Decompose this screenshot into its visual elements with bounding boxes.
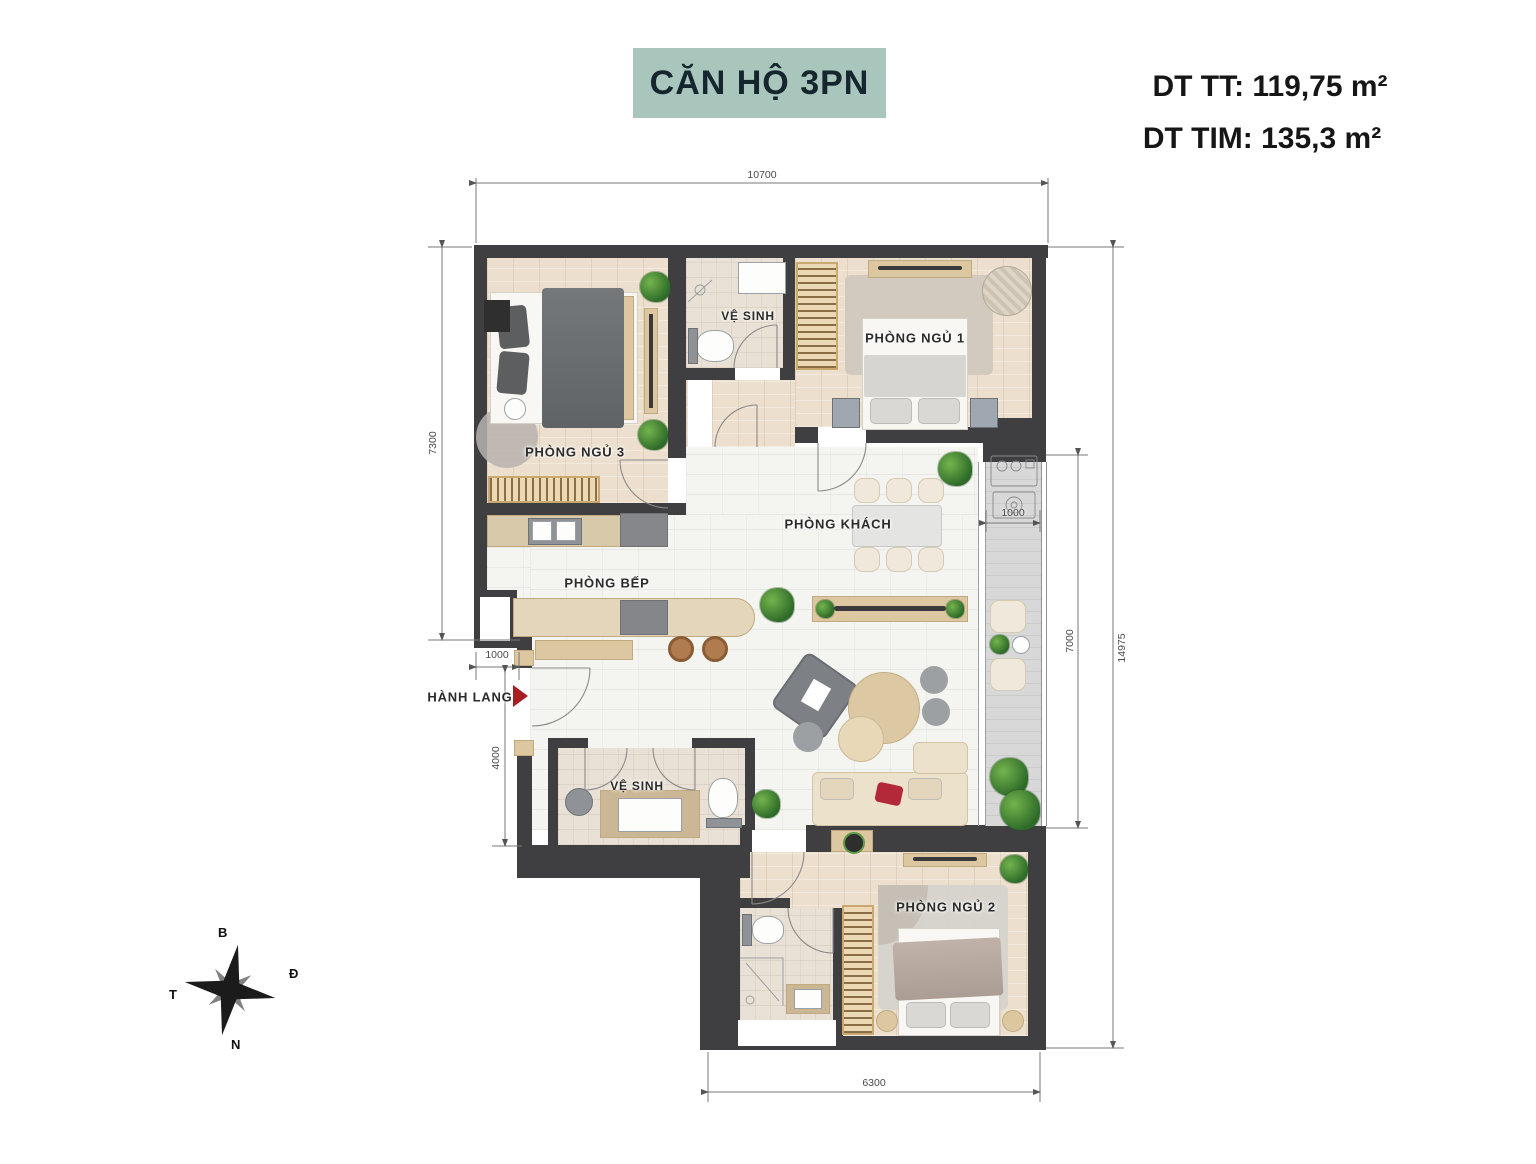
bath1-toilet-tank — [688, 328, 698, 364]
balcony-table — [1012, 636, 1030, 654]
balcony-chair-1 — [990, 600, 1026, 633]
dim-balcony-width: 1000 — [1001, 507, 1024, 519]
dining-chair-6 — [918, 547, 944, 572]
bath2-toilet-tank — [706, 818, 742, 828]
wall-bath2-top-b — [692, 738, 755, 748]
dim-top: 10700 — [747, 169, 776, 181]
bedroom1-tv-line — [878, 266, 962, 270]
compass-west-label: T — [169, 987, 177, 1002]
bedroom1-pillow-2 — [918, 398, 960, 424]
wing-niche — [738, 1020, 836, 1046]
compass-north-label: B — [218, 925, 227, 940]
bedroom2-pillow-2 — [950, 1002, 990, 1028]
bedroom2-plant — [1000, 855, 1028, 883]
wall-bed1-bottom-a — [795, 427, 818, 443]
bedroom1-sheet — [864, 355, 966, 397]
living-label: PHÒNG KHÁCH — [784, 517, 891, 532]
bedroom2-label: PHÒNG NGỦ 2 — [896, 900, 996, 915]
kitchen-stool-2 — [702, 636, 728, 662]
bath2-toilet-bowl — [708, 778, 738, 818]
kitchen-sink-left — [532, 521, 552, 541]
living-sofa-chaise — [913, 742, 968, 774]
bedroom3-wardrobe — [488, 476, 600, 503]
compass-star-secondary — [194, 954, 266, 1026]
bedroom3-tv-line — [649, 314, 653, 408]
dim-right-total: 14975 — [1116, 633, 1128, 662]
entry-jamb-bottom — [514, 740, 534, 756]
dining-chair-1 — [854, 478, 880, 503]
bath3-toilet-bowl — [752, 916, 784, 944]
bedroom2-blanket — [893, 937, 1004, 1001]
bedroom3-label: PHÒNG NGỦ 3 — [525, 445, 625, 460]
entry-arrow-icon — [513, 685, 528, 707]
living-plant-top — [938, 452, 972, 486]
bedroom3-blanket — [542, 288, 624, 428]
wall-bath2-right — [745, 748, 755, 830]
dim-left-upper: 7300 — [427, 431, 439, 454]
kitchen-niche-inner — [480, 597, 510, 641]
bedroom1-label: PHÒNG NGỦ 1 — [865, 331, 965, 346]
dim-bottom: 6300 — [862, 1077, 885, 1089]
wall-entry-lower — [517, 740, 532, 848]
wall-bath3-top — [733, 898, 790, 908]
balcony-plant-small — [990, 635, 1009, 654]
bath1-label: VỆ SINH — [721, 309, 775, 323]
living-console-line — [834, 606, 946, 611]
bath2-washer — [565, 788, 593, 816]
dining-chair-2 — [886, 478, 912, 503]
bath2-sink — [618, 798, 682, 832]
dining-chair-3 — [918, 478, 944, 503]
wing-speaker — [843, 832, 865, 854]
page-title-text: CĂN HỘ 3PN — [650, 64, 870, 103]
living-console-pot-right — [946, 600, 964, 618]
bedroom1-nightstand-right — [970, 398, 998, 428]
kitchen-stool-1 — [668, 636, 694, 662]
bedroom3-wall-tv — [484, 300, 510, 332]
bedroom3-plant-bottom — [638, 420, 668, 450]
living-pouf-1 — [793, 722, 823, 752]
kitchen-cooktop — [620, 600, 668, 635]
living-plant-sofa — [752, 790, 780, 818]
bedroom3-pillow-2 — [496, 351, 530, 395]
bedroom2-pillow-1 — [906, 1002, 946, 1028]
living-side-table — [838, 716, 884, 762]
bedroom3-side-table — [504, 398, 526, 420]
wall-bath2-left — [548, 748, 558, 845]
bedroom1-mirror — [982, 266, 1032, 316]
living-pouf-3 — [922, 698, 950, 726]
wall-right-upper — [1032, 245, 1046, 427]
sofa-cushion-1 — [820, 778, 854, 800]
floorplan-page: CĂN HỘ 3PN DT TT: 119,75 m² DT TIM: 135,… — [0, 0, 1536, 1164]
wall-bath2-top-a — [548, 738, 588, 748]
living-console-pot-left — [816, 600, 834, 618]
bedroom2-tv-line — [913, 857, 977, 861]
dim-balcony-height: 7000 — [1064, 629, 1076, 652]
wall-bed3-right — [668, 245, 686, 458]
page-title: CĂN HỘ 3PN — [633, 48, 886, 118]
bath3-sink — [794, 989, 822, 1009]
dim-entry: 1000 — [485, 649, 508, 661]
wall-band-c — [985, 826, 1046, 852]
sofa-cushion-2 — [908, 778, 942, 800]
dining-chair-4 — [854, 547, 880, 572]
bedroom2-side-table-left — [876, 1010, 898, 1032]
living-plant-mid — [760, 588, 794, 622]
bedroom1-nightstand-left — [832, 398, 860, 428]
bedroom1-wardrobe — [796, 262, 838, 370]
bedroom3-plant-top — [640, 272, 670, 302]
dining-chair-5 — [886, 547, 912, 572]
compass-east-label: Đ — [289, 966, 298, 981]
bedroom2-wardrobe — [842, 905, 874, 1035]
wall-bath1-bottom-b — [780, 368, 795, 380]
hallway-label: HÀNH LANG — [427, 690, 512, 705]
compass-rose: B Đ T N — [145, 915, 325, 1085]
wall-top — [474, 245, 1048, 258]
bath3-toilet-tank — [742, 914, 752, 946]
wall-bath1-bottom-a — [686, 368, 735, 380]
wall-wing-right — [1028, 852, 1046, 1050]
kitchen-label: PHÒNG BẾP — [564, 576, 649, 591]
balcony-bush-2 — [1000, 790, 1040, 830]
kitchen-shelf — [535, 640, 633, 660]
entry-jamb-top — [514, 650, 534, 666]
bath1-toilet-bowl — [696, 330, 734, 362]
living-pouf-2 — [920, 666, 948, 694]
kitchen-fridge — [620, 513, 668, 547]
bath1-sink — [738, 262, 786, 294]
bedroom1-pillow-1 — [870, 398, 912, 424]
compass-south-label: N — [231, 1037, 240, 1052]
bedroom2-side-table-right — [1002, 1010, 1024, 1032]
area-tim: DT TIM: 135,3 m² — [1097, 122, 1427, 156]
corridor-nook — [688, 380, 712, 447]
balcony-glass-wall — [978, 462, 986, 826]
area-tt: DT TT: 119,75 m² — [1105, 70, 1435, 104]
kitchen-sink-right — [556, 521, 576, 541]
compass-star-primary — [177, 937, 284, 1044]
bath2-label: VỆ SINH — [610, 779, 664, 793]
balcony-rail — [1041, 462, 1047, 826]
dim-left-lower: 4000 — [490, 746, 502, 769]
balcony-chair-2 — [990, 658, 1026, 691]
wall-wing-left — [700, 852, 740, 1040]
